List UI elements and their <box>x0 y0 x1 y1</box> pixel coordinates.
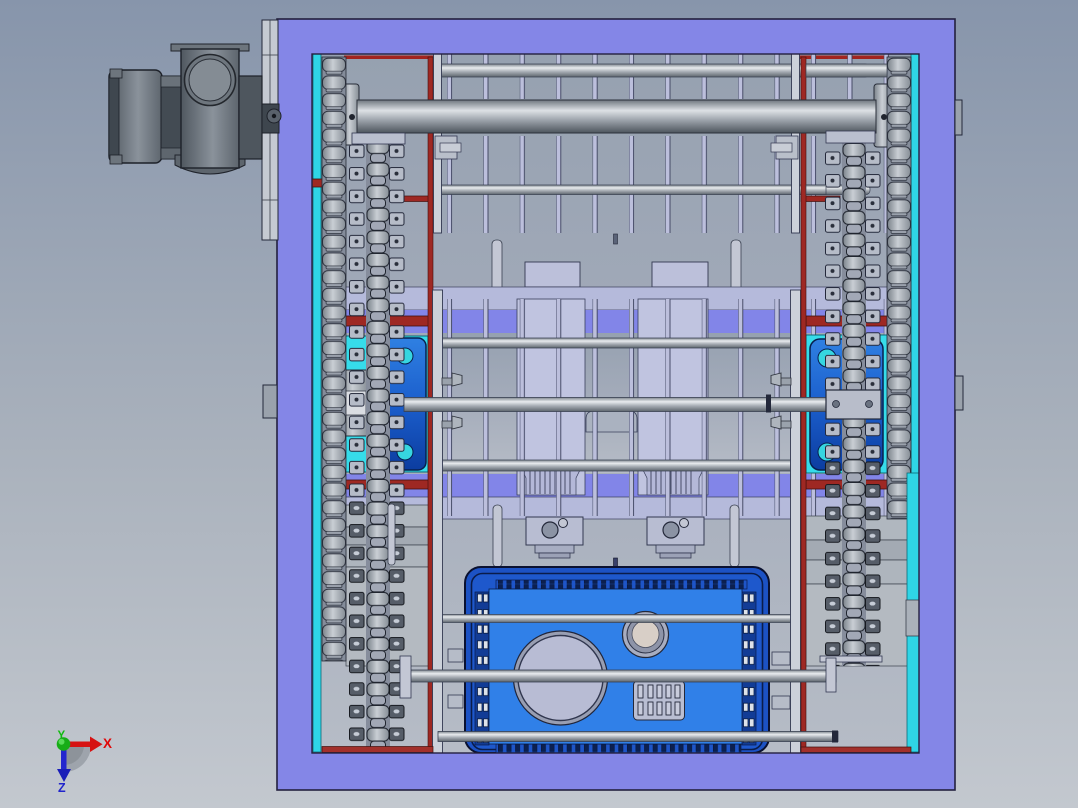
svg-text:Z: Z <box>58 781 66 795</box>
svg-text:X: X <box>103 736 112 751</box>
